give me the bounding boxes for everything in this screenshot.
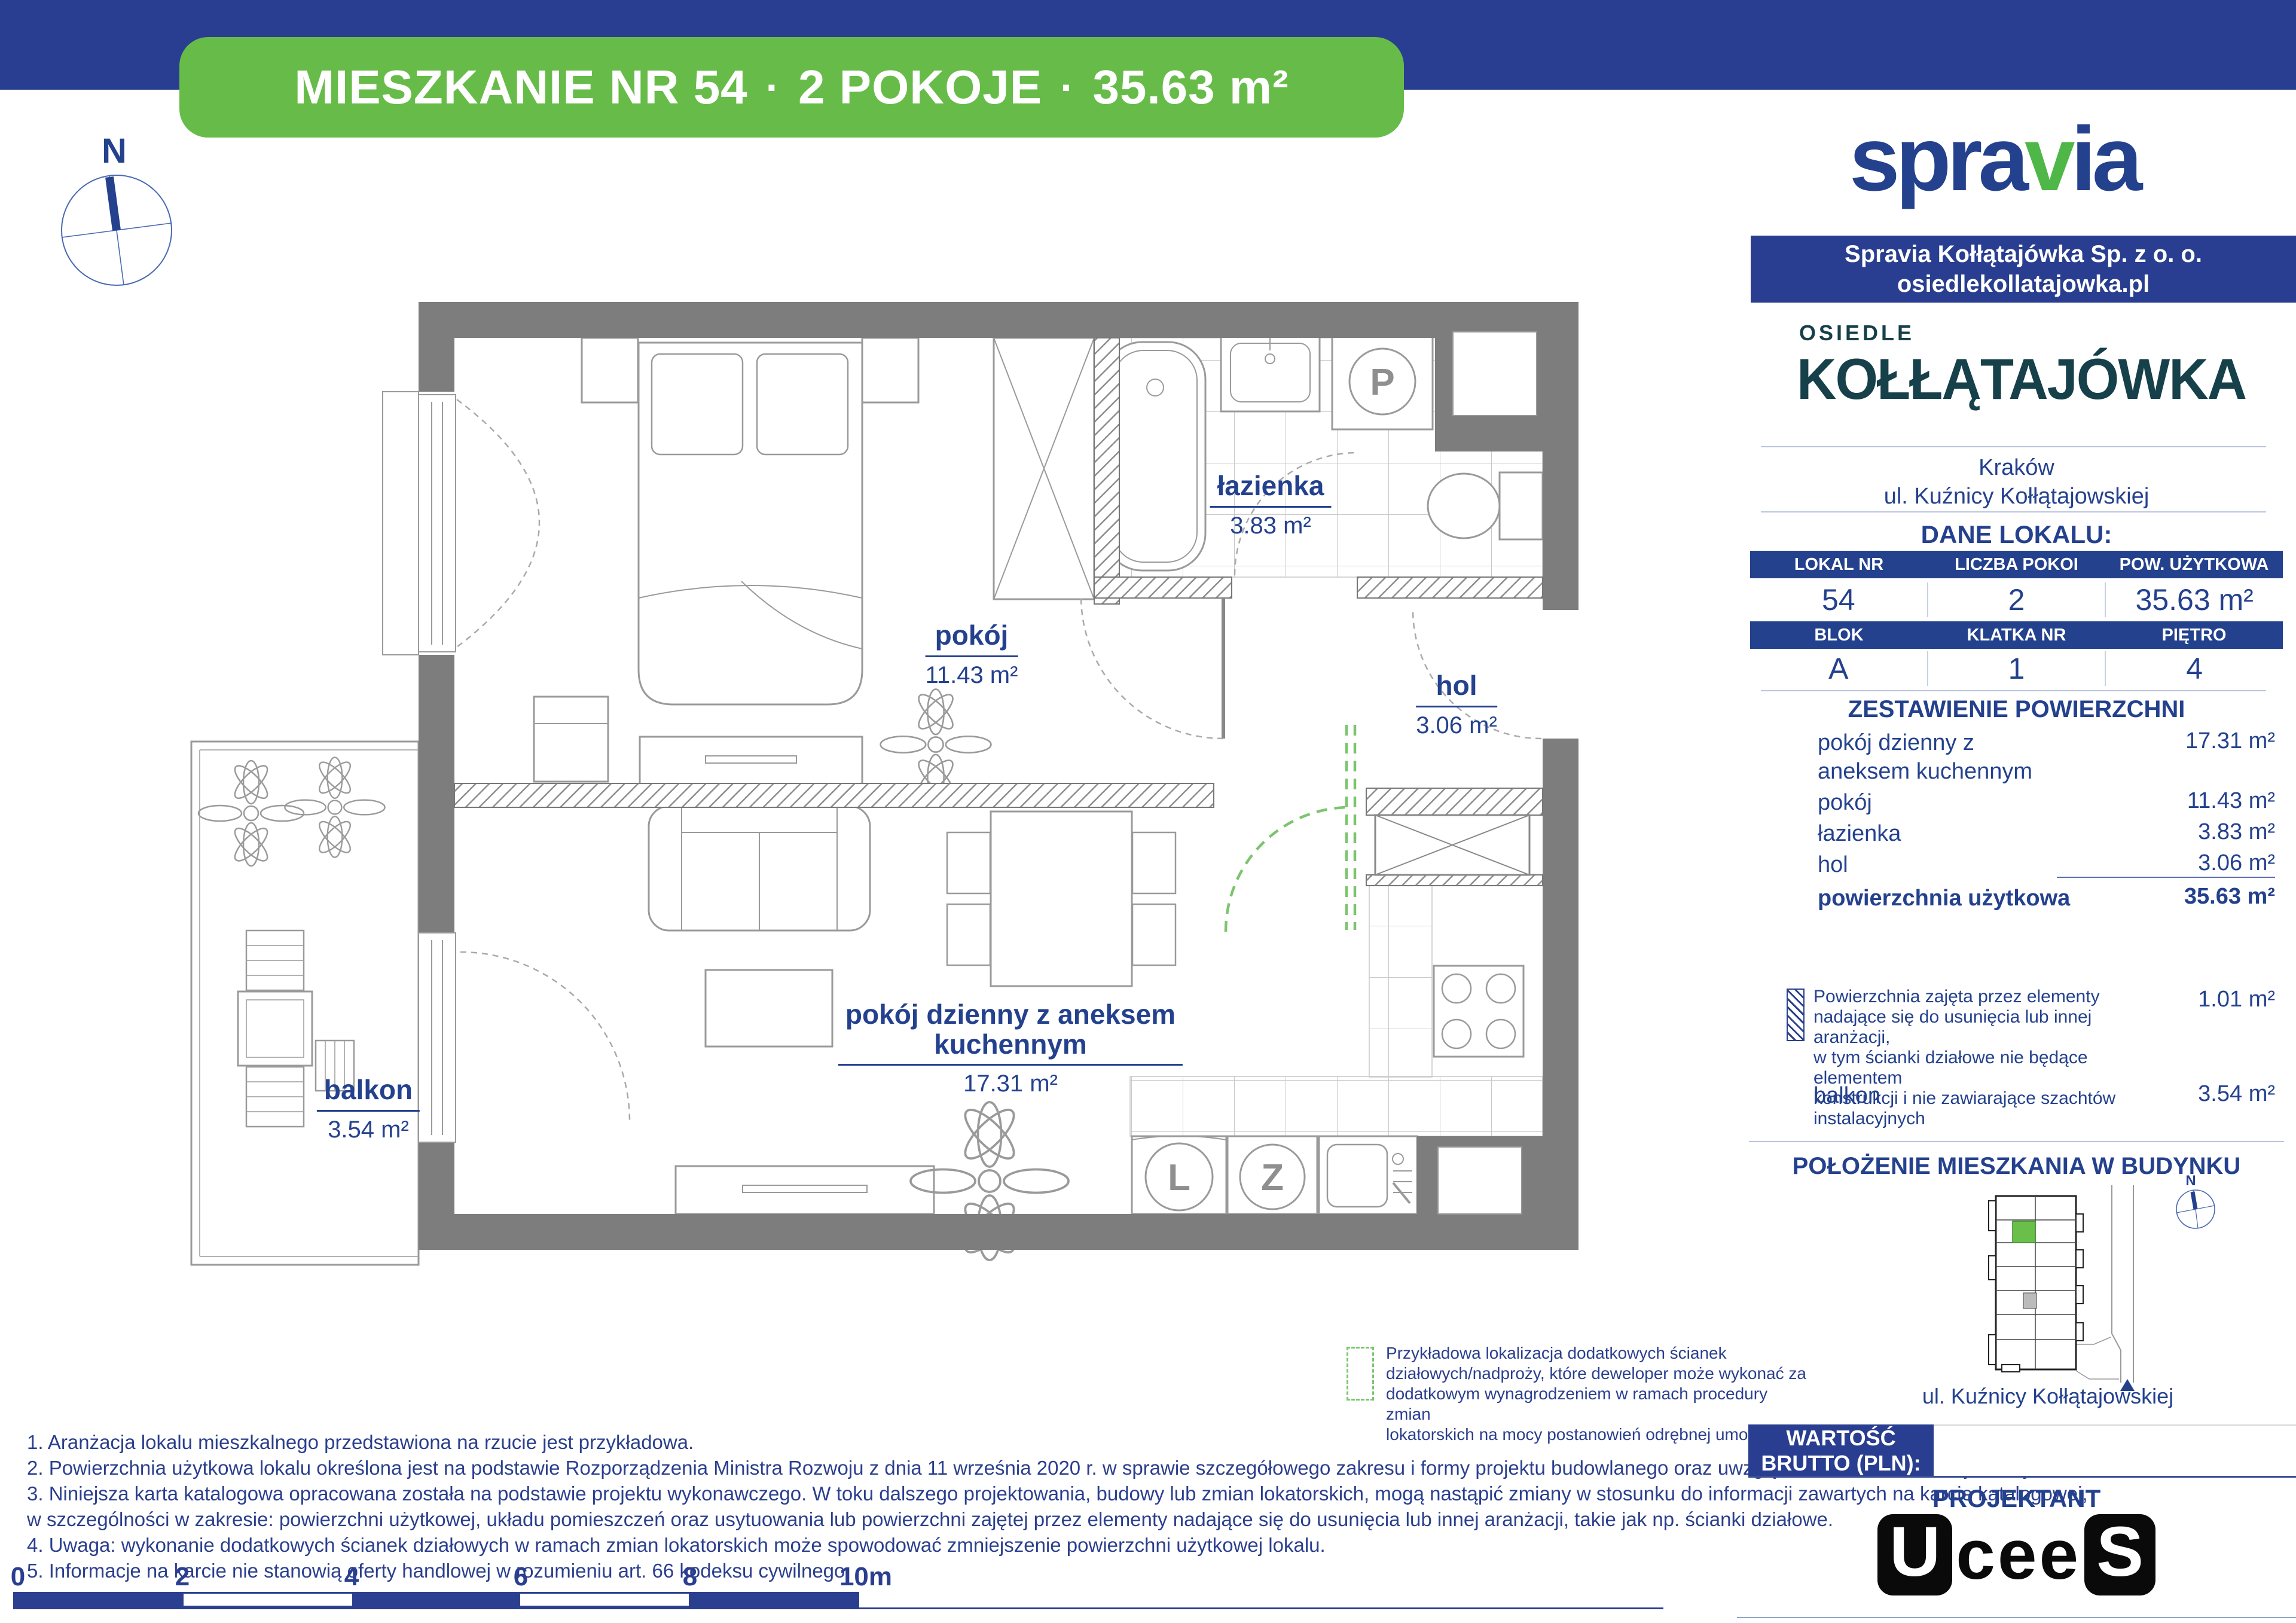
balcony-row-value: 3.54 m² <box>2198 1081 2275 1107</box>
shaft <box>1438 1147 1522 1214</box>
bedroom-furniture <box>534 338 1094 785</box>
balcony-table <box>238 992 312 1066</box>
area-row-value: 3.83 m² <box>2198 819 2275 845</box>
dining-table <box>991 811 1132 986</box>
lokal-nr-value: 54 <box>1750 582 1928 617</box>
scale-tick: 6 <box>514 1562 528 1592</box>
location-block: Kraków ul. Kuźnicy Kołłątajowskiej <box>1737 453 2296 511</box>
total-rule <box>2057 877 2275 878</box>
room-label-living: pokój dzienny z aneksem kuchennym 17.31 … <box>838 1000 1183 1097</box>
compass-icon: N <box>62 132 172 285</box>
optional-partitions <box>1226 725 1355 932</box>
company-url[interactable]: osiedlekollatajowka.pl <box>1897 269 2150 299</box>
scale-bar <box>13 1592 859 1607</box>
banner-flat-number: MIESZKANIE NR 54 <box>294 60 747 115</box>
scale-tick: 8 <box>683 1562 697 1592</box>
price-label-box: WARTOŚĆ BRUTTO (PLN): <box>1748 1424 1934 1477</box>
green-dashed-legend-icon <box>1347 1347 1374 1401</box>
spravia-logo: spravia <box>1849 114 2138 205</box>
area-row-value: 3.06 m² <box>2198 850 2275 876</box>
area-row-label: pokój <box>1818 788 1872 817</box>
chair <box>947 832 990 893</box>
chair <box>947 904 990 965</box>
position-heading: POŁOŻENIE MIESZKANIA W BUDYNKU <box>1737 1153 2296 1180</box>
removable-elements-value: 1.01 m² <box>2198 987 2275 1012</box>
balcony-door <box>419 933 630 1142</box>
table1-header: LOKAL NR LICZBA POKOI POW. UŻYTKOWA <box>1750 551 2283 578</box>
price-row-underline <box>1748 1476 2296 1478</box>
balcony-row-label: balkon <box>1813 1081 1880 1110</box>
area-row-label: hol <box>1818 850 1848 879</box>
table2-values: A 1 4 <box>1750 649 2283 688</box>
toilet-tank <box>1500 472 1543 539</box>
location-street: ul. Kuźnicy Kołłątajowskiej <box>1737 482 2296 511</box>
dane-lokalu-heading: DANE LOKALU: <box>1737 520 2296 549</box>
scale-tick: 10m <box>839 1562 892 1592</box>
company-name: Spravia Kołłątajówka Sp. z o. o. <box>1845 239 2202 269</box>
title-banner: MIESZKANIE NR 54 · 2 POKOJE · 35.63 m² <box>179 37 1404 138</box>
pillow <box>652 354 743 454</box>
total-label: powierzchnia użytkowa <box>1818 884 2070 913</box>
footnotes: 1. Aranżacja lokalu mieszkalnego przedst… <box>27 1429 1809 1584</box>
room-label-bedroom: pokój 11.43 m² <box>926 621 1018 689</box>
location-city: Kraków <box>1737 453 2296 482</box>
divider <box>1761 511 2266 512</box>
footnote: 2. Powierzchnia użytkowa lokalu określon… <box>27 1455 1809 1481</box>
compass-north-label: N <box>102 132 127 170</box>
removable-elements-icon <box>1787 989 1805 1041</box>
chair <box>1132 832 1176 893</box>
estate-logo-osiedle: OSIEDLE <box>1799 321 1915 346</box>
coffee-table <box>706 970 832 1047</box>
dishwasher-letter: Z <box>1261 1157 1284 1198</box>
room-label-hall: hol 3.06 m² <box>1416 671 1497 739</box>
table1-values: 54 2 35.63 m² <box>1750 578 2283 621</box>
chair <box>1132 904 1176 965</box>
pietro-value: 4 <box>2106 651 2283 686</box>
scale-tick: 2 <box>175 1562 190 1592</box>
estate-logo-kollatajowka: KOŁŁĄTAJÓWKA <box>1797 347 2246 413</box>
balcony <box>191 742 419 1265</box>
scale-tick: 0 <box>11 1562 25 1592</box>
area-row-value: 17.31 m² <box>2185 728 2275 754</box>
bedroom-window <box>383 392 539 655</box>
washer-letter: P <box>1370 362 1394 403</box>
banner-rooms: 2 POKOJE <box>798 60 1042 115</box>
plant-icon <box>285 757 384 857</box>
klatka-value: 1 <box>1928 651 2106 686</box>
sidebar-bottom-rule <box>1737 1617 2296 1618</box>
room-label-bathroom: łazienka 3.83 m² <box>1210 471 1332 539</box>
liczba-pokoi-value: 2 <box>1928 582 2106 617</box>
kitchen-shaft <box>1375 815 1529 875</box>
banner-separator: · <box>1060 63 1074 111</box>
scale-baseline <box>13 1607 1663 1609</box>
footnote: 3. Niniejsza karta katalogowa opracowana… <box>27 1481 1809 1506</box>
footnote: 4. Uwaga: wykonanie dodatkowych ścianek … <box>27 1532 1809 1558</box>
area-row-label: łazienka <box>1818 819 1901 848</box>
area-row-label: pokój dzienny z aneksem kuchennym <box>1818 728 2032 786</box>
sidebar: spravia Spravia Kołłątajówka Sp. z o. o.… <box>1737 0 2296 1623</box>
footnote: 1. Aranżacja lokalu mieszkalnego przedst… <box>27 1429 1809 1455</box>
area-row-value: 11.43 m² <box>2187 788 2275 814</box>
position-street: ul. Kuźnicy Kołłątajowskiej <box>1785 1384 2296 1409</box>
pillow <box>757 354 848 454</box>
company-box: Spravia Kołłątajówka Sp. z o. o. osiedle… <box>1751 236 2296 303</box>
plant-icon <box>199 761 304 866</box>
banner-area: 35.63 m² <box>1092 60 1289 115</box>
scale-tick: 4 <box>344 1562 359 1592</box>
dresser <box>534 697 608 782</box>
ucees-logo: U cee S <box>1737 1514 2296 1595</box>
entrance-opening <box>1543 610 1578 739</box>
zestawienie-heading: ZESTAWIENIE POWIERZCHNI <box>1737 696 2296 723</box>
shaft <box>1453 332 1537 416</box>
blok-value: A <box>1750 651 1928 686</box>
footnote: 5. Informacje na karcie nie stanowią ofe… <box>27 1558 1809 1584</box>
table2-header: BLOK KLATKA NR PIĘTRO <box>1750 621 2283 649</box>
footnote: w szczególności w zakresie: powierzchni … <box>27 1506 1809 1532</box>
divider <box>1761 446 2266 447</box>
total-value: 35.63 m² <box>2184 884 2275 910</box>
banner-separator: · <box>766 63 780 111</box>
divider <box>1761 690 2266 691</box>
room-label-balcony: balkon 3.54 m² <box>317 1075 420 1143</box>
projektant-heading: PROJEKTANT <box>1737 1484 2296 1513</box>
price-value-field[interactable] <box>1934 1424 2296 1477</box>
divider <box>1749 1141 2284 1142</box>
fridge-letter: L <box>1168 1157 1190 1198</box>
toilet-bowl <box>1428 474 1500 538</box>
pow-uzytkowa-value: 35.63 m² <box>2106 582 2283 617</box>
